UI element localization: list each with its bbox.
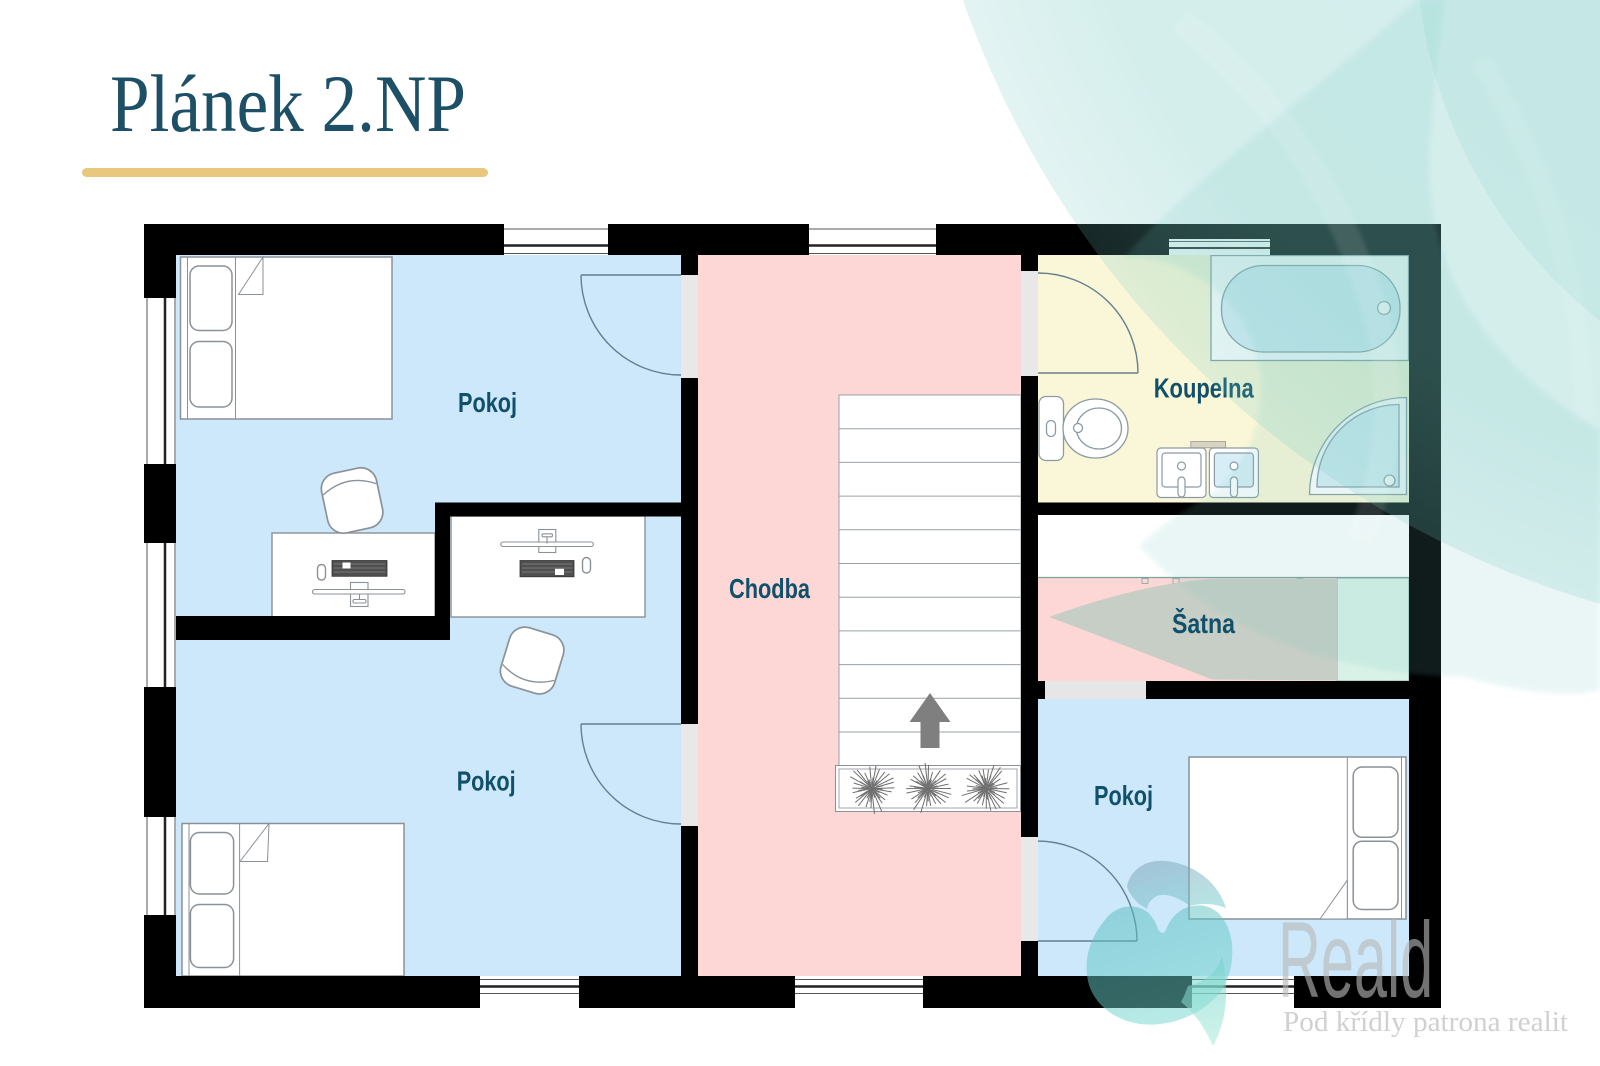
svg-text:Pokoj: Pokoj [457, 766, 516, 797]
svg-text:Reald: Reald [1278, 900, 1433, 1020]
svg-text:Chodba: Chodba [729, 573, 810, 604]
svg-text:Pod křídly patrona realit: Pod křídly patrona realit [1283, 1007, 1568, 1038]
svg-text:Plánek 2.NP: Plánek 2.NP [110, 58, 466, 149]
svg-text:Pokoj: Pokoj [458, 387, 517, 418]
svg-text:Pokoj: Pokoj [1094, 780, 1153, 811]
